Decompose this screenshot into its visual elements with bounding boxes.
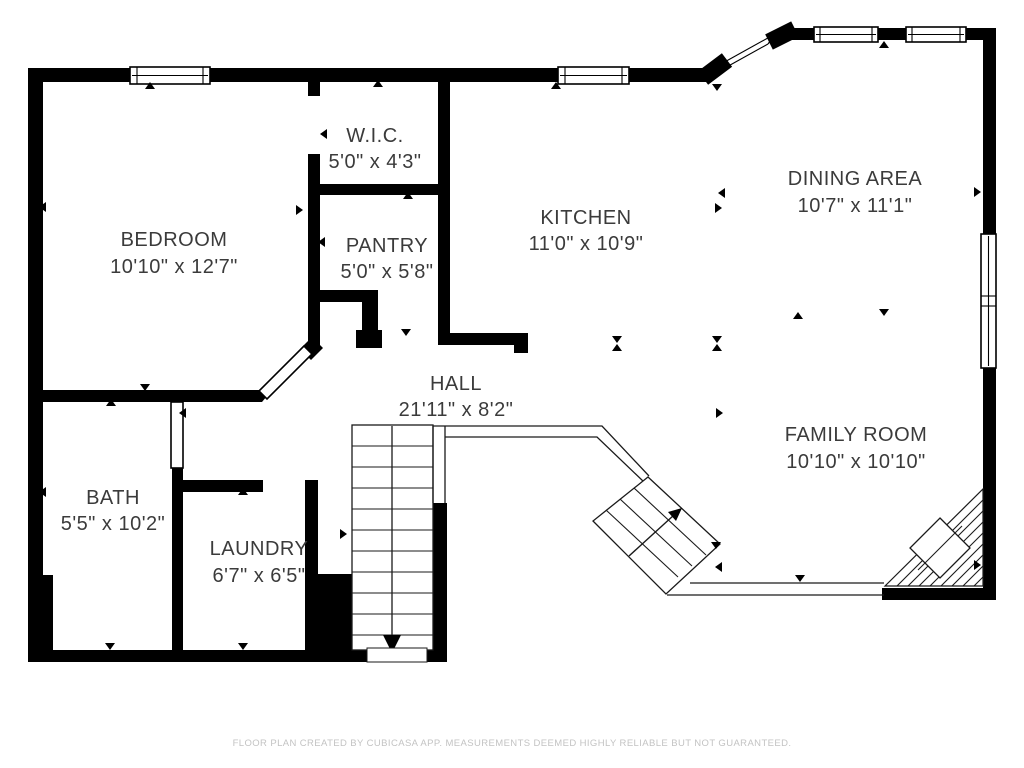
room-name: LAUNDRY (210, 538, 309, 560)
room-name: BATH (86, 487, 140, 509)
room-label-family: FAMILY ROOM 10'10" x 10'10" (785, 424, 928, 473)
dining-window-left (814, 27, 878, 42)
bedroom-window (130, 67, 210, 84)
room-name: BEDROOM (121, 229, 228, 251)
room-name: HALL (430, 373, 482, 395)
room-label-laundry: LAUNDRY 6'7" x 6'5" (210, 538, 309, 587)
room-label-hall: HALL 21'11" x 8'2" (399, 373, 514, 421)
room-labels: BEDROOM 10'10" x 12'7" W.I.C. 5'0" x 4'3… (61, 125, 928, 587)
dining-window-right (906, 27, 966, 42)
room-dims: 6'7" x 6'5" (213, 565, 306, 587)
dining-side-window (981, 234, 996, 368)
room-dims: 10'7" x 11'1" (798, 195, 913, 217)
floor-plan-drawing: BEDROOM 10'10" x 12'7" W.I.C. 5'0" x 4'3… (0, 0, 1024, 768)
walls (28, 28, 996, 662)
stair-landing (367, 648, 427, 662)
room-label-pantry: PANTRY 5'0" x 5'8" (341, 235, 434, 283)
footer-disclaimer: FLOOR PLAN CREATED BY CUBICASA APP. MEAS… (233, 738, 792, 749)
hall-railing (433, 426, 649, 482)
room-label-kitchen: KITCHEN 11'0" x 10'9" (529, 207, 644, 255)
room-dims: 5'5" x 10'2" (61, 513, 166, 535)
doors (171, 346, 312, 468)
room-dims: 5'0" x 4'3" (329, 151, 422, 173)
room-name: KITCHEN (540, 207, 631, 229)
room-dims: 11'0" x 10'9" (529, 233, 644, 255)
room-label-bath: BATH 5'5" x 10'2" (61, 487, 166, 535)
room-dims: 5'0" x 5'8" (341, 261, 434, 283)
room-label-bedroom: BEDROOM 10'10" x 12'7" (110, 229, 238, 278)
family-room-open-edge (667, 583, 884, 595)
staircase-diagonal (593, 477, 720, 594)
room-label-wic: W.I.C. 5'0" x 4'3" (329, 125, 422, 173)
staircase-main (352, 425, 445, 662)
room-dims: 10'10" x 12'7" (110, 256, 238, 278)
room-dims: 10'10" x 10'10" (786, 451, 925, 473)
kitchen-window (558, 67, 629, 84)
floor-plan-page: BEDROOM 10'10" x 12'7" W.I.C. 5'0" x 4'3… (0, 0, 1024, 768)
bedroom-door-leaf (259, 346, 312, 399)
room-dims: 21'11" x 8'2" (399, 399, 514, 421)
staircase-corner-hatched (885, 489, 983, 586)
room-name: W.I.C. (346, 125, 403, 147)
room-name: DINING AREA (788, 168, 923, 190)
room-name: FAMILY ROOM (785, 424, 928, 446)
room-name: PANTRY (346, 235, 428, 257)
room-label-dining: DINING AREA 10'7" x 11'1" (788, 168, 923, 217)
